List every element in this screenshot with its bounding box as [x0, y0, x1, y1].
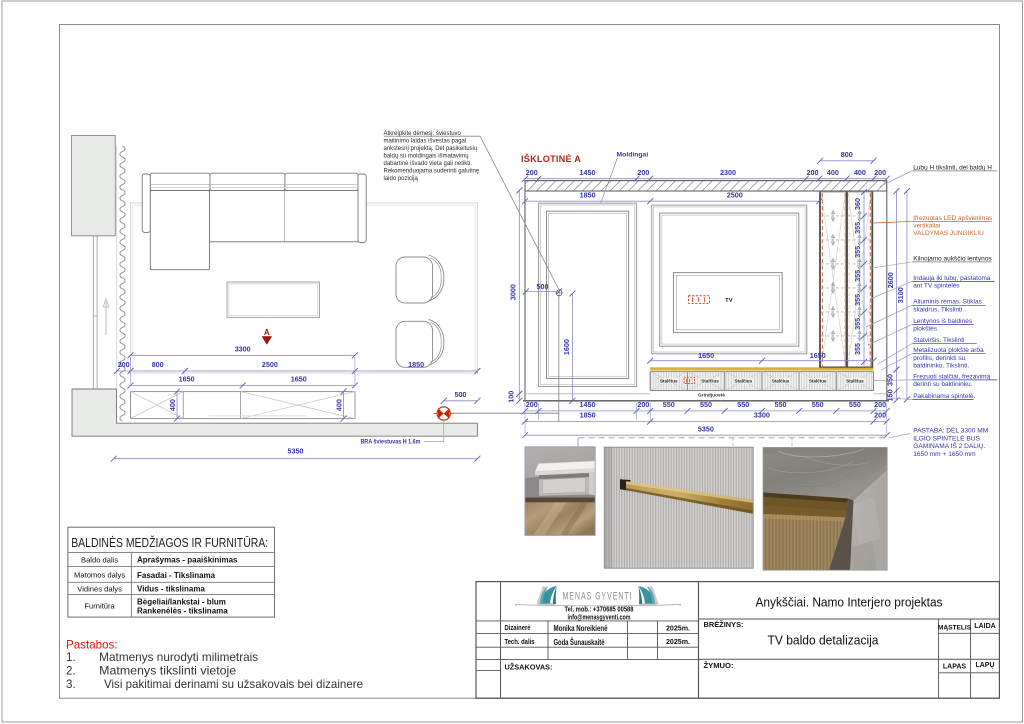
svg-text:2025m.: 2025m. [666, 623, 690, 632]
svg-text:TV: TV [725, 298, 733, 304]
svg-text:Grindjuostė: Grindjuostė [698, 392, 725, 398]
svg-text:Matmenys nurodyti milimetrais: Matmenys nurodyti milimetrais [99, 651, 258, 664]
svg-text:400: 400 [334, 399, 343, 411]
svg-text:ILGIO SPINTELĖ BUS: ILGIO SPINTELĖ BUS [913, 433, 980, 442]
svg-text:550: 550 [663, 400, 675, 409]
svg-text:profilis, derinkti su: profilis, derinkti su [913, 355, 965, 362]
svg-text:UŽSAKOVAS:: UŽSAKOVAS: [505, 663, 553, 672]
svg-text:VALDYMAS JUNGIKLIU: VALDYMAS JUNGIKLIU [913, 230, 984, 237]
svg-text:200: 200 [637, 168, 649, 177]
svg-text:355: 355 [853, 343, 862, 355]
svg-text:ankstesnį projektą. Dėl pasike: ankstesnį projektą. Dėl pasikeitusių [384, 146, 478, 152]
svg-text:info@menasgyventi.com: info@menasgyventi.com [568, 614, 631, 621]
svg-text:Aprašymas - paaiškinimas: Aprašymas - paaiškinimas [137, 556, 238, 565]
svg-text:Matmenys tikslinti vietoje: Matmenys tikslinti vietoje [99, 664, 236, 677]
svg-text:355: 355 [853, 222, 862, 234]
svg-text:Stalčius: Stalčius [809, 379, 827, 384]
svg-text:Frezuoti stalčiai, frezavimą: Frezuoti stalčiai, frezavimą [913, 373, 990, 380]
svg-text:TV baldo detalizacija: TV baldo detalizacija [768, 633, 880, 648]
svg-text:2500: 2500 [727, 191, 743, 200]
svg-text:BRĖŽINYS:: BRĖŽINYS: [704, 620, 744, 629]
svg-text:5350: 5350 [288, 447, 304, 456]
svg-text:3.: 3. [66, 678, 76, 691]
svg-text:355: 355 [853, 246, 862, 258]
svg-text:2.: 2. [66, 664, 76, 677]
svg-text:GAMINAMA IŠ 2 DALIŲ.: GAMINAMA IŠ 2 DALIŲ. [913, 441, 985, 450]
svg-text:Stalčius: Stalčius [772, 379, 790, 384]
svg-text:BALDINĖS MEDŽIAGOS IR FURNITŪR: BALDINĖS MEDŽIAGOS IR FURNITŪRA: [71, 535, 268, 550]
svg-text:1850: 1850 [580, 411, 596, 420]
svg-text:1650: 1650 [698, 351, 714, 360]
svg-text:3100: 3100 [896, 287, 905, 303]
svg-text:550: 550 [849, 400, 861, 409]
svg-text:355: 355 [853, 318, 862, 330]
svg-text:Aliuminis rėmas. Stiklas: Aliuminis rėmas. Stiklas [913, 299, 982, 306]
svg-text:Tel. mob.: +370685 00588: Tel. mob.: +370685 00588 [565, 607, 634, 614]
svg-text:550: 550 [812, 400, 824, 409]
svg-text:800: 800 [841, 150, 853, 159]
svg-text:200: 200 [874, 400, 886, 409]
svg-text:Statviršis. Tikslinti: Statviršis. Tikslinti [913, 337, 964, 344]
svg-text:LAPAS: LAPAS [943, 664, 967, 671]
svg-text:IŠKLOTINĖ A: IŠKLOTINĖ A [521, 153, 581, 164]
svg-text:550: 550 [737, 400, 749, 409]
svg-text:Indauja iki lubų, pastatoma: Indauja iki lubų, pastatoma [913, 275, 991, 282]
svg-text:1450: 1450 [580, 400, 596, 409]
svg-text:500: 500 [455, 390, 467, 399]
svg-text:200: 200 [526, 168, 538, 177]
svg-text:Stalčius: Stalčius [660, 379, 678, 384]
svg-text:Pastabos:: Pastabos: [66, 638, 118, 651]
svg-text:Lentynos iš baldinės: Lentynos iš baldinės [913, 318, 973, 325]
svg-text:baldininku. Tikslinti.: baldininku. Tikslinti. [913, 363, 969, 370]
svg-text:Rekomenduojama suderinti galut: Rekomenduojama suderinti galutinę [384, 168, 480, 174]
svg-text:3000: 3000 [509, 284, 518, 300]
svg-text:Metalizuota plokštė arba: Metalizuota plokštė arba [913, 347, 984, 354]
svg-text:1650: 1650 [291, 375, 307, 384]
svg-text:800: 800 [152, 360, 164, 369]
svg-text:MĄSTELIS: MĄSTELIS [938, 625, 972, 632]
svg-text:A: A [264, 328, 270, 337]
svg-text:200: 200 [526, 400, 538, 409]
svg-text:100: 100 [507, 391, 516, 403]
svg-text:plokštės: plokštės [913, 326, 938, 333]
svg-text:200: 200 [807, 168, 819, 177]
svg-text:1650 mm + 1650 mm: 1650 mm + 1650 mm [913, 451, 976, 458]
svg-text:LAIDA: LAIDA [974, 623, 995, 630]
svg-text:ŽYMUO:: ŽYMUO: [704, 661, 734, 670]
svg-text:Anykščiai. Namo Interjero proj: Anykščiai. Namo Interjero projektas [756, 594, 943, 609]
svg-text:400: 400 [827, 168, 839, 177]
svg-text:Įfrezuotas LED apšvietimas: Įfrezuotas LED apšvietimas [913, 215, 993, 222]
svg-text:Kilnojamo aukščio lentynos: Kilnojamo aukščio lentynos [913, 255, 992, 262]
svg-text:Rankenėlės - tikslinama: Rankenėlės - tikslinama [137, 607, 228, 616]
svg-text:3300: 3300 [754, 411, 770, 420]
svg-text:200: 200 [874, 411, 886, 420]
svg-text:Vidinės dalys: Vidinės dalys [77, 585, 122, 594]
svg-text:vertikaliai: vertikaliai [913, 223, 940, 230]
svg-text:1650: 1650 [810, 351, 826, 360]
svg-text:Pakabinama spintelė.: Pakabinama spintelė. [913, 393, 975, 400]
svg-text:1450: 1450 [580, 168, 596, 177]
svg-text:PASTABA: DĖL 3300 MM: PASTABA: DĖL 3300 MM [913, 426, 988, 435]
svg-text:maitinimo laidas išvestas paga: maitinimo laidas išvestas pagal [384, 138, 467, 144]
svg-text:Vidus - tikslinama: Vidus - tikslinama [137, 585, 205, 594]
svg-text:Matomos dalys: Matomos dalys [74, 571, 125, 580]
svg-text:2500: 2500 [262, 360, 278, 369]
svg-text:LAPŲ: LAPŲ [975, 662, 994, 669]
svg-text:Dizainerė: Dizainerė [505, 623, 531, 632]
svg-text:baldų su moldingais išmatavimų: baldų su moldingais išmatavimų [384, 153, 470, 159]
svg-text:Monika Noreikienė: Monika Noreikienė [554, 624, 609, 633]
svg-text:ant TV spintelės: ant TV spintelės [913, 283, 960, 290]
svg-text:200: 200 [637, 400, 649, 409]
svg-text:360: 360 [853, 198, 862, 210]
svg-text:Bėgeliai/lankstai - blum: Bėgeliai/lankstai - blum [137, 598, 226, 607]
svg-text:1850: 1850 [408, 360, 424, 369]
svg-text:2300: 2300 [720, 168, 736, 177]
svg-text:355: 355 [853, 270, 862, 282]
svg-text:2025m.: 2025m. [666, 637, 690, 646]
svg-text:Atkreipkite dėmesį: šviestuvo: Atkreipkite dėmesį: šviestuvo [384, 131, 462, 137]
svg-text:200: 200 [118, 360, 130, 369]
svg-text:550: 550 [775, 400, 787, 409]
svg-text:derinti su baldininku.: derinti su baldininku. [913, 381, 972, 388]
svg-text:Stalčius: Stalčius [846, 379, 864, 384]
svg-text:Goda Šunauskaitė: Goda Šunauskaitė [554, 638, 605, 647]
svg-text:2600: 2600 [886, 272, 895, 288]
svg-text:500: 500 [537, 282, 549, 291]
svg-text:550: 550 [700, 400, 712, 409]
svg-text:Furnitūra: Furnitūra [84, 602, 115, 611]
svg-text:Visi pakitimai derinami su užs: Visi pakitimai derinami su užsakovais be… [104, 678, 363, 691]
svg-text:dabartinė išvado vieta gali ne: dabartinė išvado vieta gali netikti. [384, 161, 473, 167]
svg-text:Lubų H tikslinti, dėl baldų H: Lubų H tikslinti, dėl baldų H [913, 164, 992, 171]
svg-text:200: 200 [874, 168, 886, 177]
svg-text:1650: 1650 [179, 375, 195, 384]
svg-text:1600: 1600 [562, 339, 571, 355]
svg-text:Fasadai - Tikslinama: Fasadai - Tikslinama [137, 571, 216, 580]
svg-text:400: 400 [168, 399, 177, 411]
svg-text:355: 355 [853, 294, 862, 306]
svg-text:BRA šviestuvas H 1.6m: BRA šviestuvas H 1.6m [361, 439, 421, 445]
svg-text:Stalčius: Stalčius [734, 379, 752, 384]
svg-text:MENAS GYVENTI: MENAS GYVENTI [563, 591, 633, 603]
svg-text:Moldingai: Moldingai [617, 152, 649, 159]
svg-text:5350: 5350 [698, 424, 714, 433]
svg-text:150: 150 [885, 389, 894, 401]
svg-text:1.: 1. [66, 651, 76, 664]
svg-text:3300: 3300 [235, 345, 251, 354]
svg-text:Baldo dalis: Baldo dalis [81, 556, 118, 565]
svg-text:Stalčius: Stalčius [701, 379, 719, 384]
svg-text:1850: 1850 [580, 191, 596, 200]
svg-text:Tech. dalis: Tech. dalis [505, 637, 535, 646]
svg-text:skaidrus. Tikslinti: skaidrus. Tikslinti [913, 306, 962, 313]
svg-text:400: 400 [854, 168, 866, 177]
svg-text:laido poziciją: laido poziciją [384, 176, 419, 182]
